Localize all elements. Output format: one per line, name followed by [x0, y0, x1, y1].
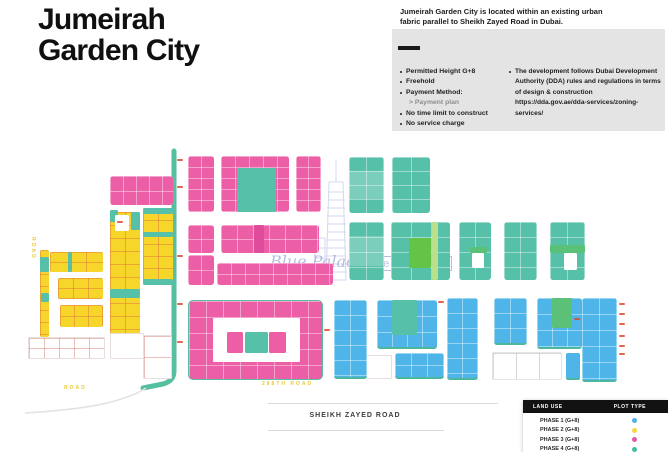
map-plot-block [110, 333, 144, 359]
legend-row-phase2: PHASE 2 (G+8) [523, 426, 668, 436]
map-plot-block [143, 232, 173, 237]
phase3-label: PHASE 3 (G+8) [540, 437, 579, 443]
phase2-label: PHASE 2 (G+8) [540, 427, 579, 433]
map-plot-block [131, 212, 140, 230]
map-plot-block [188, 156, 214, 212]
map-plot-block [349, 171, 384, 199]
master-plan-map: Blue Palace Real Estate SHEIKH ZAYED ROA… [0, 0, 668, 452]
map-plot-block [245, 332, 268, 353]
map-plot-block [269, 332, 286, 353]
map-plot-block [432, 222, 438, 280]
map-plot-block [392, 300, 417, 335]
map-plot-block [68, 252, 72, 272]
map-plot-block [143, 279, 173, 285]
map-plot-block [227, 332, 243, 353]
map-plot-block [188, 255, 214, 285]
map-plot-block [143, 208, 173, 285]
map-plot-block [143, 208, 173, 214]
phase1-dot [632, 418, 637, 423]
map-plot-block [494, 298, 527, 345]
legend-header-plot-type: PLOT TYPE [614, 404, 646, 410]
map-plot-block [409, 238, 431, 268]
road-line-bottom [268, 430, 444, 431]
phase3-dot [632, 437, 637, 442]
map-plot-block [552, 298, 572, 328]
legend-body: PHASE 1 (G+8) PHASE 2 (G+8) PHASE 3 (G+8… [523, 413, 668, 452]
map-plot-block [28, 337, 105, 359]
road-name-label: 288TH ROAD [262, 381, 313, 387]
phase1-label: PHASE 1 (G+8) [540, 418, 579, 424]
road-line-top [268, 403, 498, 404]
map-plot-block [566, 353, 580, 380]
map-plot-block [188, 225, 214, 253]
map-plot-block [110, 176, 173, 205]
road-name-label: ROAD [64, 385, 87, 391]
page: Jumeirah Garden City Jumeirah Garden Cit… [0, 0, 668, 452]
legend-header-land-use: LAND USE [533, 404, 563, 410]
map-plot-block [296, 156, 321, 212]
map-plot-block [349, 236, 384, 266]
map-plot-block [221, 225, 319, 253]
map-plot-block [334, 300, 367, 379]
legend-row-phase1: PHASE 1 (G+8) [523, 416, 668, 426]
map-plot-block [254, 225, 264, 253]
phase4-label: PHASE 4 (G+8) [540, 446, 579, 452]
map-plot-block [504, 222, 537, 280]
map-plot-block [237, 168, 276, 212]
map-plot-block [40, 257, 49, 272]
phase2-dot [632, 428, 637, 433]
map-plot-block [447, 298, 478, 380]
legend-header: LAND USE PLOT TYPE [523, 400, 668, 413]
map-plot-block [110, 289, 140, 298]
map-plot-block [492, 352, 562, 380]
map-plot-block [472, 253, 484, 268]
map-plot-block [582, 298, 617, 382]
map-plot-block [143, 335, 172, 379]
map-plot-block [392, 157, 430, 213]
road-label-sheikh-zayed: SHEIKH ZAYED ROAD [270, 412, 440, 419]
map-plot-block [395, 353, 444, 379]
map-plot-block [60, 305, 103, 327]
map-plot-block [550, 245, 585, 253]
map-plot-block [564, 253, 577, 270]
map-plot-block [50, 252, 103, 272]
legend: LAND USE PLOT TYPE PHASE 1 (G+8) PHASE 2… [523, 400, 668, 452]
map-plot-block [366, 355, 392, 379]
map-plot-block [58, 278, 103, 299]
legend-row-phase4: PHASE 4 (G+8) [523, 445, 668, 452]
road-name-label: ROAD [30, 237, 36, 260]
curved-road-outline [25, 388, 146, 413]
map-plot-block [217, 263, 333, 285]
map-plot-block [41, 293, 49, 302]
legend-row-phase3: PHASE 3 (G+8) [523, 435, 668, 445]
phase4-dot [632, 447, 637, 452]
